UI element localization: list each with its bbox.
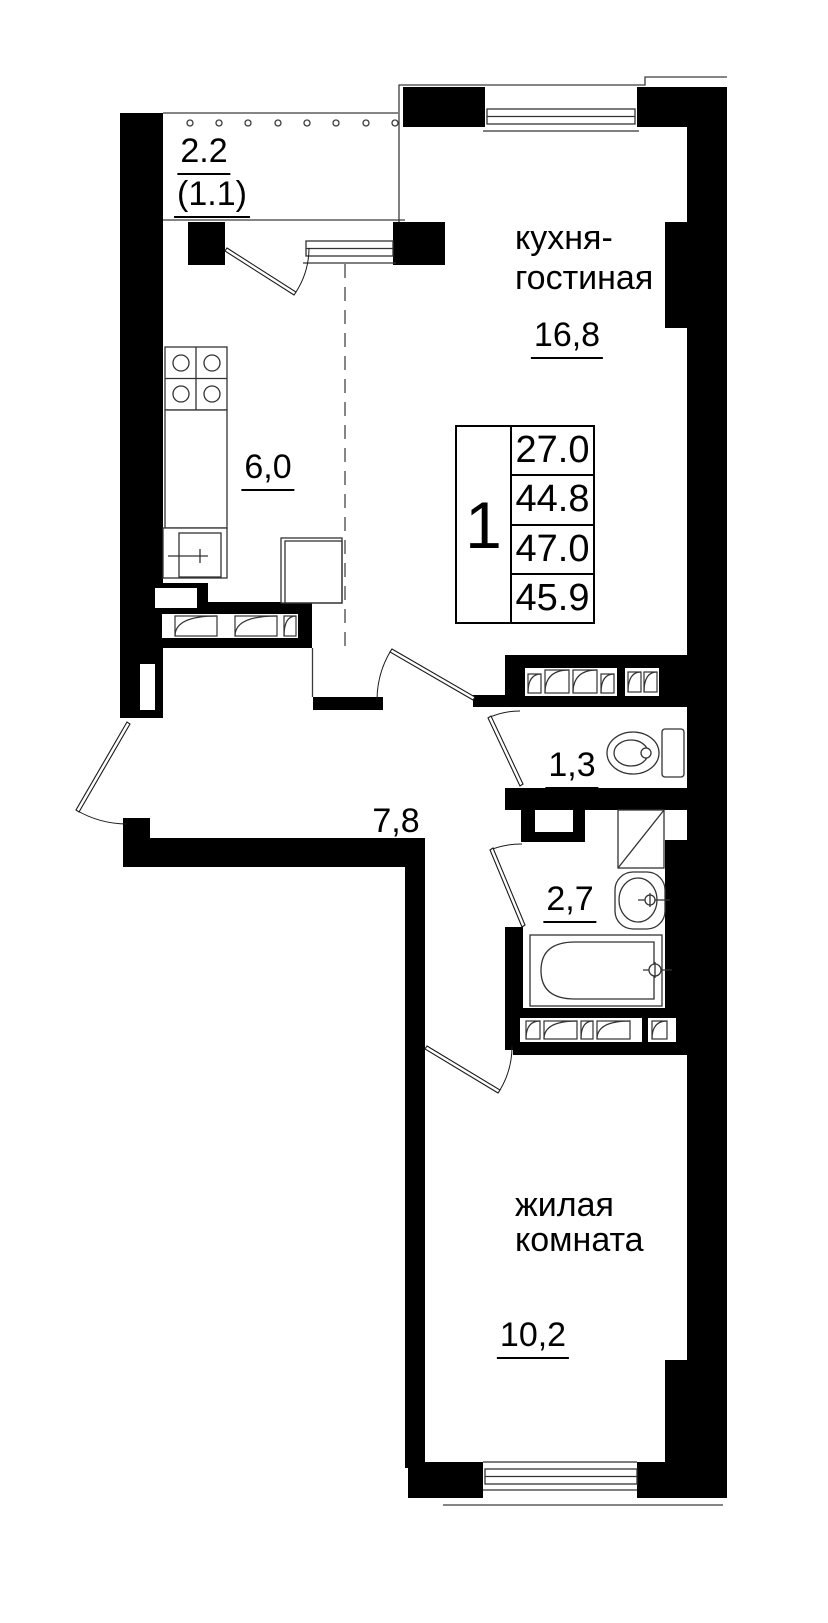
kitchen-living-area-label: 16,8 [531,318,603,352]
entrance-door [76,722,130,824]
bathroom-area-label: 2,7 [543,882,596,916]
kitchen-living-name-line1: кухня- [515,221,613,255]
fridge-icon [281,538,342,603]
rooms-count-cell: 1 [457,427,512,622]
living-room-name-line1: жилая [515,1188,614,1222]
stove-icon [165,347,227,410]
floor-plan: 2.2 (1.1) кухня- гостиная 16,8 6,0 7,8 1… [0,0,828,1623]
wc-door [488,711,523,786]
area-values-column: 27.0 44.8 47.0 45.9 [512,427,593,622]
kitchen-counter [165,410,227,528]
area-value-cell: 27.0 [512,427,593,476]
kitchen-sink-icon [163,528,227,578]
bedroom-door [425,1046,512,1093]
area-value-cell: 47.0 [512,526,593,575]
living-room-area-label: 10,2 [497,1318,569,1352]
apartment-info-table: 1 27.0 44.8 47.0 45.9 [455,425,595,624]
balcony-area-secondary-label: (1.1) [174,177,250,211]
hallway-area-label: 7,8 [369,804,422,838]
kitchen-living-name-line2: гостиная [515,261,653,295]
area-value-cell: 45.9 [512,575,593,622]
balcony-area-label: 2.2 [177,134,230,168]
washbasin-icon [615,872,670,929]
kitchen-living-door [377,649,475,700]
bathroom-door [490,844,525,927]
area-value-cell: 44.8 [512,476,593,525]
kitchen-zone-area-label: 6,0 [241,450,294,484]
balcony-door [225,248,309,295]
wc-area-label: 1,3 [545,748,598,782]
bathtub-icon [530,935,672,1006]
living-room-name-line2: комната [515,1223,644,1257]
shower-icon [618,810,664,868]
toilet-icon [607,729,684,777]
